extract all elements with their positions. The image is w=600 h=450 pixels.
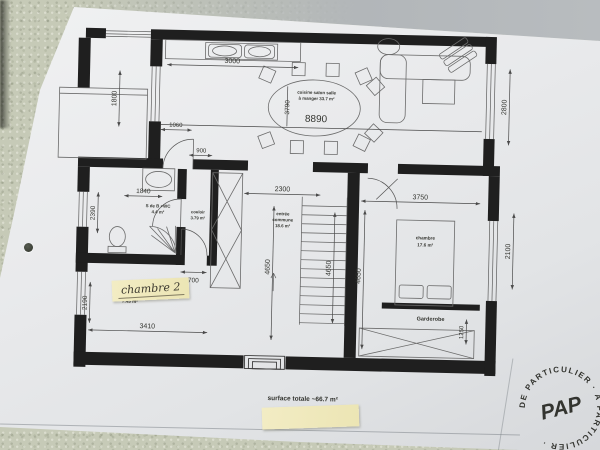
bathroom-label-2: 4.4 m² xyxy=(151,209,164,214)
hole-punch xyxy=(24,243,33,252)
bedroom1-label-2: 17.6 m² xyxy=(417,242,433,247)
sticky-note-bedroom2: chambre 2 xyxy=(112,277,190,301)
handwritten-room-name: chambre 2 xyxy=(117,280,183,299)
dim-entry-width: 2300 xyxy=(275,186,291,193)
living-label-2: à manger 33.7 m² xyxy=(299,96,336,102)
dim-bedroom1-width: 3750 xyxy=(412,194,428,201)
toilet xyxy=(108,226,127,252)
dim-corridor-width: 900 xyxy=(196,148,207,154)
sofa xyxy=(376,38,471,124)
dim-entry-height: 4650 xyxy=(264,259,271,275)
entry-steps xyxy=(244,355,284,369)
bed xyxy=(395,220,455,306)
dim-stair-height: 4650 xyxy=(325,260,332,276)
bathroom-label-1: S de B +WC xyxy=(146,203,172,209)
bedroom1-label-1: chambre xyxy=(416,235,436,240)
floor-plan-drawing: 3000 1800 1060 900 1840 2390 2190 3410 7… xyxy=(47,19,556,445)
dim-bedroom2-door: 700 xyxy=(188,277,199,284)
entry-label-1: entrée xyxy=(276,211,290,216)
pillow xyxy=(427,286,451,300)
pillow xyxy=(399,285,423,299)
dim-living-door: 1060 xyxy=(169,123,183,129)
dim-wardrobe-depth: 1250 xyxy=(459,325,465,339)
dim-bedroom1-window: 2100 xyxy=(505,243,512,259)
dim-living-window: 2800 xyxy=(501,99,508,115)
pap-watermark: DE PARTICULIER · À PARTICULIER · PAP xyxy=(515,362,600,450)
entry-label-3: 18.6 m² xyxy=(275,223,291,228)
photo-of-floor-plan: 3000 1800 1060 900 1840 2390 2190 3410 7… xyxy=(0,0,600,450)
wardrobe xyxy=(359,328,475,359)
dim-bath-height: 2390 xyxy=(90,205,97,220)
living-label-1: cuisine salon salle xyxy=(297,90,336,96)
door-swings xyxy=(152,138,399,260)
dim-balcony-window: 1800 xyxy=(111,90,118,106)
dim-living-width: 3790 xyxy=(284,100,291,115)
dim-bedroom2-width: 3410 xyxy=(139,323,155,330)
living-length: 8890 xyxy=(305,114,328,126)
dim-bedroom2-height: 2190 xyxy=(82,295,89,310)
dim-bath-width: 1840 xyxy=(136,188,151,195)
edge-smudge xyxy=(0,0,11,128)
corridor-label-1: couloir xyxy=(191,209,205,214)
sticky-note-blank xyxy=(262,404,360,429)
shower xyxy=(149,225,177,254)
floor-plan-svg: 3000 1800 1060 900 1840 2390 2190 3410 7… xyxy=(47,19,556,445)
entry-label-2: commune xyxy=(272,217,293,222)
coffee-table xyxy=(422,79,455,104)
dining-chairs xyxy=(257,62,385,156)
dim-kitchen-width: 3000 xyxy=(224,58,240,65)
dim-bedroom1-height: 4650 xyxy=(355,268,362,284)
wardrobe-label: Garderobe xyxy=(417,316,445,323)
corridor-label-2: 3.79 m² xyxy=(190,215,205,220)
total-area-label: surface totale ~66.7 m² xyxy=(267,395,338,404)
balcony xyxy=(58,87,148,159)
watermark-center-text: PAP xyxy=(538,392,585,425)
